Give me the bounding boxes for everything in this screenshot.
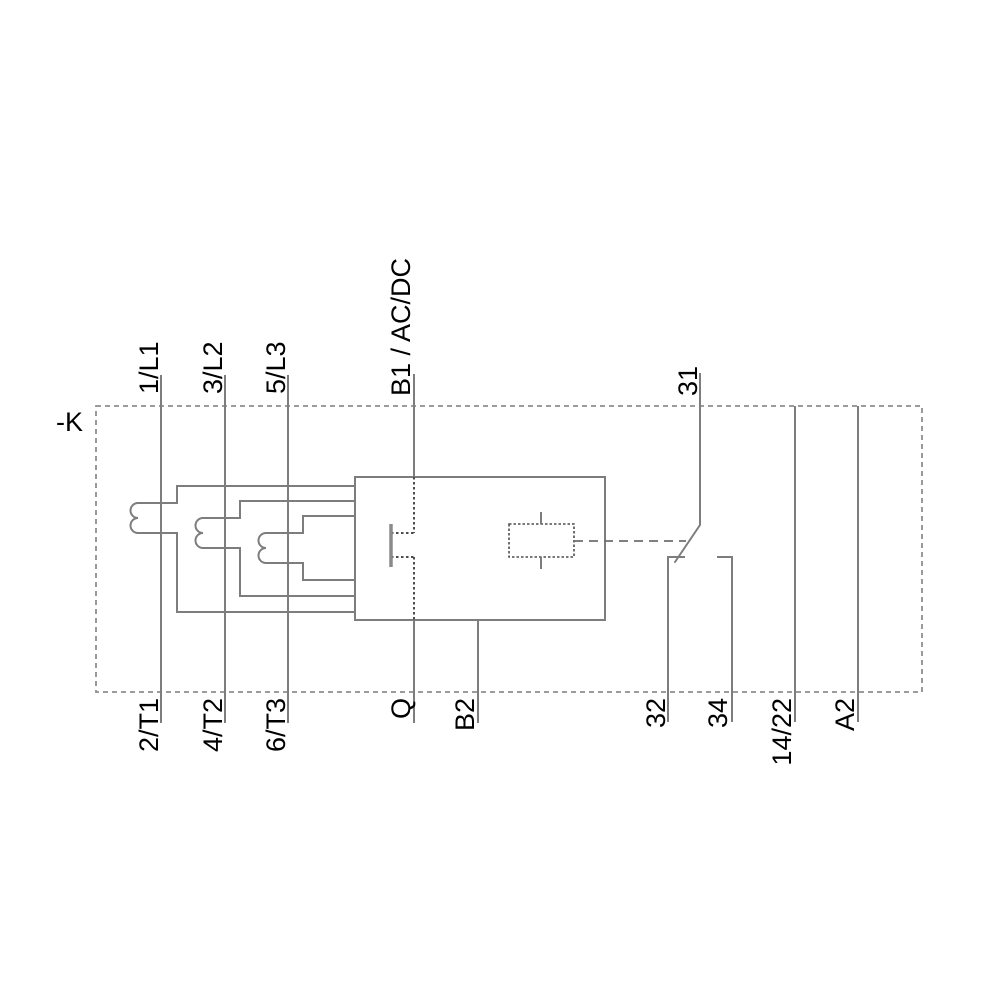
phase-l3-winding-bottom-link — [266, 563, 355, 580]
terminal-label-3l2: 3/L2 — [198, 341, 228, 394]
phase-l1-winding-icon — [131, 503, 138, 533]
phase-l3-winding-icon — [259, 533, 267, 563]
loop-through-conductors: 14/22 A2 — [767, 406, 860, 766]
circuit-diagram: -K 1/L1 2/T1 3/L2 4/T2 5/L3 6/T3 — [0, 0, 1000, 1000]
evaluation-unit: B1 / AC/DC Q B2 — [355, 258, 686, 731]
phase-l2-winding-icon — [196, 518, 204, 548]
contact-34-conductor — [717, 557, 732, 722]
phase-l3-winding-top-link — [266, 516, 355, 533]
terminal-label-q: Q — [386, 698, 416, 719]
terminal-label-2t1: 2/T1 — [134, 698, 164, 752]
relay-function-block — [509, 524, 574, 557]
changeover-contact: 31 32 34 — [641, 366, 733, 728]
terminal-label-b1-acdc: B1 / AC/DC — [386, 258, 416, 396]
phase-l1-winding-bottom-link — [138, 533, 355, 612]
terminal-label-31: 31 — [673, 366, 703, 396]
device-reference-label: -K — [56, 407, 83, 437]
terminal-label-6t3: 6/T3 — [261, 698, 291, 752]
terminal-label-5l3: 5/L3 — [261, 341, 291, 394]
terminal-label-4t2: 4/T2 — [198, 698, 228, 752]
terminal-label-a2: A2 — [830, 698, 860, 731]
terminal-label-b2: B2 — [450, 698, 480, 731]
terminal-label-32: 32 — [641, 698, 671, 728]
circuit-diagram-page: -K 1/L1 2/T1 3/L2 4/T2 5/L3 6/T3 — [0, 0, 1000, 1000]
phase-l3: 5/L3 6/T3 — [259, 341, 356, 752]
phase-l2: 3/L2 4/T2 — [196, 341, 356, 752]
terminal-label-14-22: 14/22 — [767, 698, 797, 766]
terminal-label-34: 34 — [703, 698, 733, 728]
contact-32-conductor — [668, 557, 685, 722]
terminal-label-1l1: 1/L1 — [134, 341, 164, 394]
phase-l1: 1/L1 2/T1 — [131, 341, 355, 752]
